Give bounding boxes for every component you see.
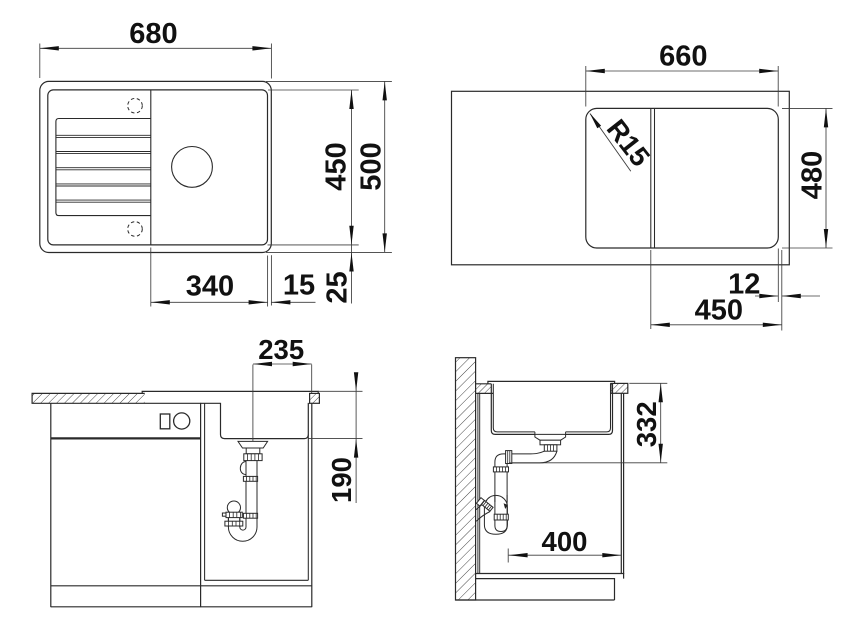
svg-text:235: 235 <box>258 334 304 365</box>
svg-text:500: 500 <box>356 142 388 190</box>
svg-text:332: 332 <box>631 401 662 447</box>
svg-text:15: 15 <box>283 270 315 302</box>
svg-text:190: 190 <box>326 457 357 503</box>
svg-text:680: 680 <box>129 18 177 50</box>
svg-text:R15: R15 <box>601 113 656 172</box>
svg-text:480: 480 <box>797 151 829 199</box>
svg-text:340: 340 <box>186 271 234 303</box>
svg-text:450: 450 <box>321 142 353 190</box>
svg-text:450: 450 <box>695 295 743 327</box>
svg-text:25: 25 <box>322 271 354 303</box>
svg-text:400: 400 <box>542 526 588 557</box>
svg-text:660: 660 <box>659 41 707 73</box>
